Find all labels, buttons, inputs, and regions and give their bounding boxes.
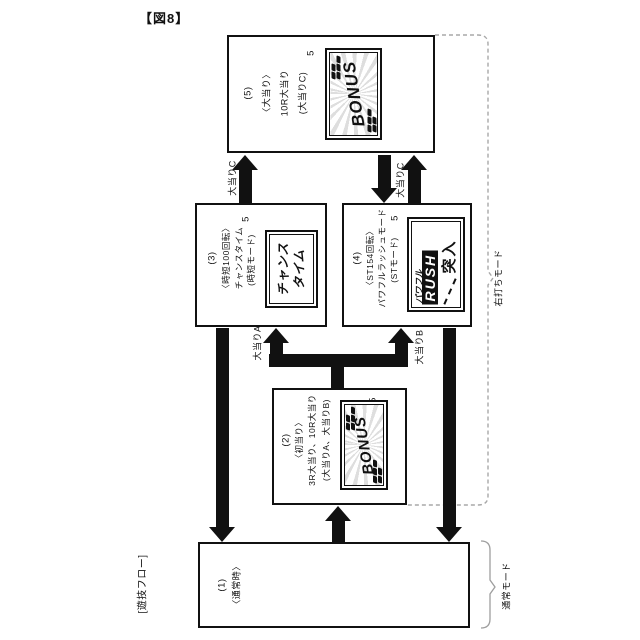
box-chance-sub: (時短モード) bbox=[245, 234, 257, 286]
box-jackpot-name: 〈大当り〉 bbox=[260, 69, 273, 117]
box-chance-number: (3) bbox=[207, 251, 218, 264]
box-rush-detail: パワフルラッシュモード bbox=[376, 208, 388, 307]
box-rush-number: (4) bbox=[352, 251, 363, 264]
rush-logo-line2: RUSH bbox=[422, 250, 438, 304]
box-rush-name: 〈ST154回転〉 bbox=[364, 226, 376, 290]
label-jackpot-a: 大当りA bbox=[251, 325, 264, 360]
rush-logo-swoosh-decoration bbox=[443, 278, 456, 304]
patent-figure-page: 【図8】 (5) 〈大当り〉 10R大当り (大当りC) 5 BONUS bbox=[0, 0, 640, 640]
arrow-rush-to-normal bbox=[436, 328, 462, 542]
ref-number-chance: 5 bbox=[241, 216, 252, 222]
ref-number-rush: 5 bbox=[390, 215, 401, 221]
label-jackpot-b: 大当りB bbox=[413, 329, 426, 364]
box-chance-detail: チャンスタイム bbox=[233, 227, 245, 290]
bonus-logo-firsthit: BONUS bbox=[340, 400, 388, 490]
box-normal-name: 〈通常時〉 bbox=[230, 561, 243, 609]
normal-mode-bracket bbox=[481, 541, 495, 628]
box-firsthit-sub: (大当りA、大当りB) bbox=[320, 399, 332, 481]
box-normal-number: (1) bbox=[217, 578, 228, 591]
bonus-logo-jackpot: BONUS bbox=[325, 48, 382, 140]
box-jackpot-detail: 10R大当り bbox=[278, 70, 291, 117]
box-jackpot-number: (5) bbox=[243, 86, 254, 99]
box-firsthit-number: (2) bbox=[281, 433, 292, 446]
bonus-logo-text: BONUS bbox=[338, 60, 368, 129]
label-jackpot-c-right: 大当りC bbox=[394, 162, 407, 198]
box-firsthit-name: 〈初当り〉 bbox=[293, 417, 305, 462]
box-chance-name: 〈時短100回転〉 bbox=[220, 223, 232, 293]
arrow-chance-to-normal bbox=[209, 328, 235, 542]
box-firsthit-detail: 3R大当り、10R大当り bbox=[306, 394, 318, 486]
confetti-decoration bbox=[373, 460, 382, 483]
confetti-decoration bbox=[367, 109, 376, 132]
chance-logo-line1: チャンス bbox=[276, 242, 292, 296]
label-normal-mode: 通常モード bbox=[500, 562, 513, 610]
ref-number-jackpot: 5 bbox=[306, 50, 317, 56]
box-rush-sub: (STモード) bbox=[388, 237, 400, 283]
chance-time-logo: チャンス タイム bbox=[265, 230, 318, 308]
box-jackpot-sub: (大当りC) bbox=[296, 72, 309, 115]
confetti-decoration bbox=[331, 56, 340, 79]
figure-label: 【図8】 bbox=[139, 8, 189, 27]
arrow-normal-to-firsthit bbox=[325, 506, 351, 542]
label-right-hit-mode: 右打ちモード bbox=[492, 249, 505, 306]
confetti-decoration bbox=[346, 407, 355, 430]
arrow-fork-stem bbox=[331, 354, 344, 388]
chance-logo-line2: タイム bbox=[292, 249, 308, 289]
rush-logo-line3: 突入 bbox=[438, 239, 459, 273]
powerful-rush-logo: パワフル RUSH 突入 bbox=[407, 217, 465, 312]
game-flow-label: [遊技フロー] bbox=[134, 554, 149, 613]
label-jackpot-c-left: 大当りC bbox=[226, 160, 239, 196]
